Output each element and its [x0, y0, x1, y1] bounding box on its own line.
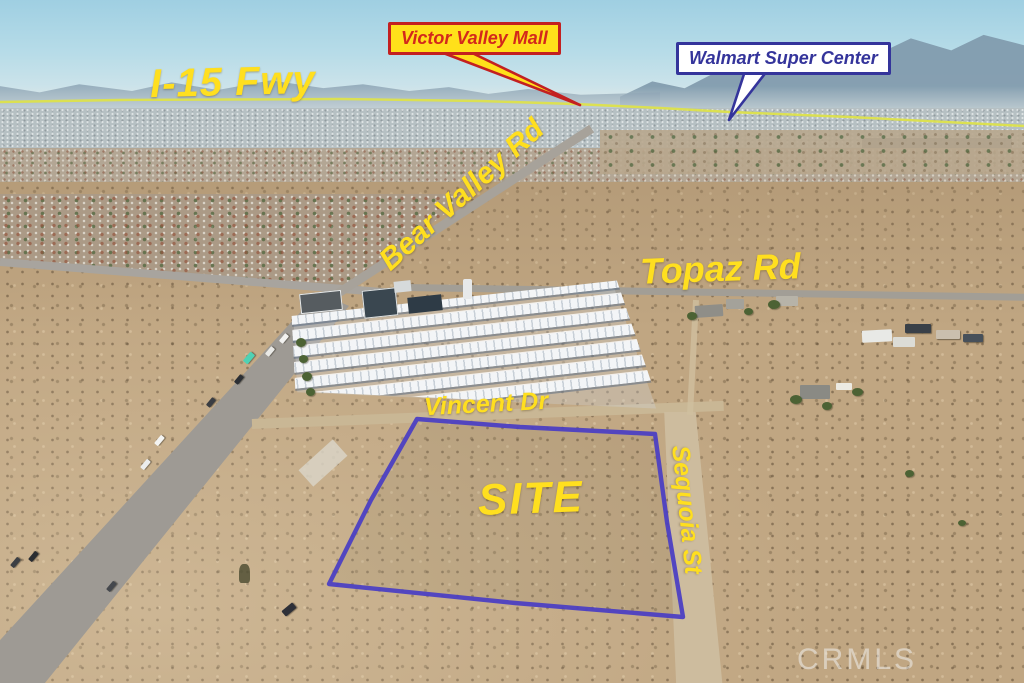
tree — [306, 388, 315, 396]
rural-homes-band — [600, 130, 1024, 174]
tree — [852, 388, 863, 396]
truck — [936, 330, 960, 339]
tree — [744, 308, 753, 315]
tree — [299, 355, 308, 363]
joshua-tree — [239, 564, 250, 583]
tree — [302, 372, 312, 381]
callout-victor-valley-mall: Victor Valley Mall — [388, 22, 561, 55]
label-topaz-rd: Topaz Rd — [639, 245, 801, 293]
rv — [836, 383, 852, 390]
rural-house-roof — [695, 304, 724, 318]
callout-walmart-super-center: Walmart Super Center — [676, 42, 891, 75]
tree — [822, 402, 832, 410]
tree — [790, 395, 802, 404]
tree — [958, 520, 966, 526]
tree — [905, 470, 914, 477]
white-trailer — [862, 329, 893, 343]
white-trailer — [893, 337, 915, 347]
gas-canopy — [393, 280, 411, 293]
rural-house-roof — [800, 385, 830, 399]
tree — [687, 312, 697, 320]
truck — [905, 324, 931, 333]
tree — [768, 300, 780, 309]
rural-house-roof — [726, 299, 744, 309]
water-tower — [463, 279, 472, 299]
label-site: SITE — [477, 472, 584, 526]
tree — [296, 338, 306, 347]
truck — [963, 334, 983, 342]
label-i15-fwy: I-15 Fwy — [149, 58, 316, 107]
crmls-watermark: CRMLS — [797, 643, 917, 677]
aerial-site-photo: Victor Valley Mall Walmart Super Center … — [0, 0, 1024, 683]
